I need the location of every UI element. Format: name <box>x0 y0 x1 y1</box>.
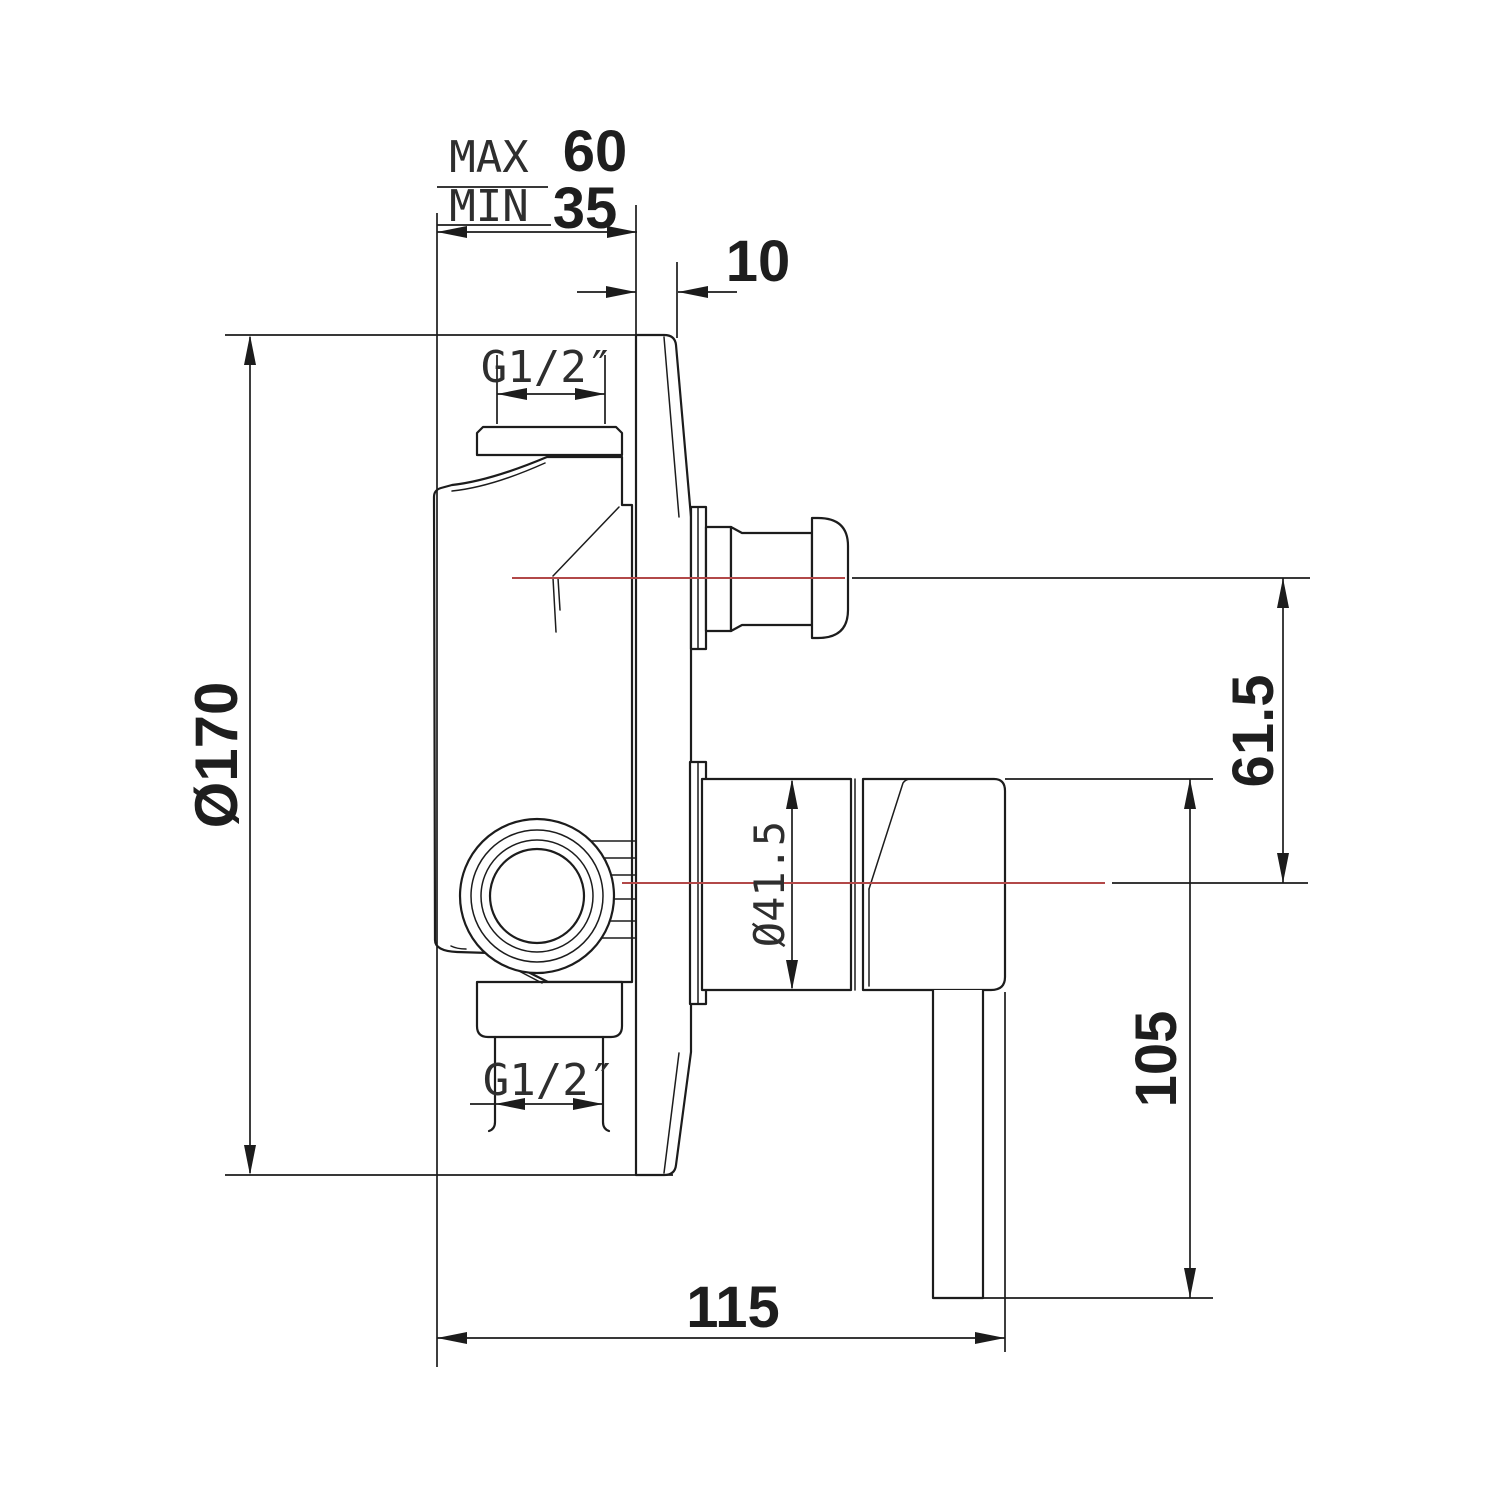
plate-diameter-value: Ø170 <box>183 682 250 829</box>
top-port-flange <box>477 427 622 455</box>
mixer-valve-section-drawing: MAX 60 MIN 35 10 G1/2″ G1/2″ Ø170 61.5 Ø… <box>0 0 1500 1500</box>
escutcheon-plate <box>636 335 691 1175</box>
body-depth-value: 115 <box>686 1275 780 1340</box>
bottom-port-thread-label: G1/2″ <box>483 1055 615 1106</box>
min-label: MIN <box>449 181 528 232</box>
handle-body <box>863 779 1005 990</box>
max-label: MAX <box>449 132 529 183</box>
dimension-lines <box>225 187 1310 1367</box>
top-port-thread-label: G1/2″ <box>481 342 613 393</box>
handle <box>690 762 1005 1298</box>
handle-diameter-value: Ø41.5 <box>745 821 794 947</box>
technical-drawing-sheet: MAX 60 MIN 35 10 G1/2″ G1/2″ Ø170 61.5 Ø… <box>0 0 1500 1500</box>
bottom-block <box>477 982 622 1037</box>
dimension-labels: MAX 60 MIN 35 10 G1/2″ G1/2″ Ø170 61.5 Ø… <box>183 119 1286 1340</box>
axis-spacing-value: 61.5 <box>1221 675 1286 788</box>
handle-lever <box>933 990 983 1298</box>
handle-drop-value: 105 <box>1124 1011 1189 1108</box>
plate-offset-value: 10 <box>726 229 791 294</box>
min-value: 35 <box>553 176 618 241</box>
valve-body <box>434 427 632 1131</box>
max-value: 60 <box>563 119 628 184</box>
